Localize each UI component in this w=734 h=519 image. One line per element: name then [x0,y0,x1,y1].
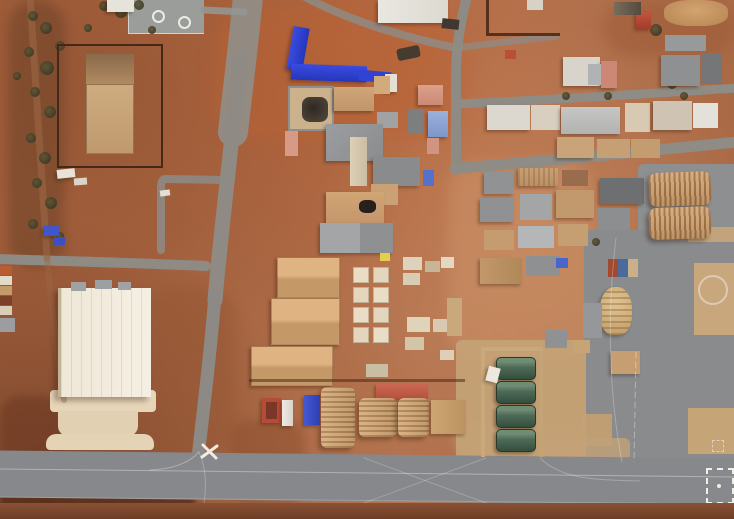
small-dashed-square [712,440,724,452]
helipad-circle-1 [152,10,165,23]
dashed-square-center-dot [717,484,721,488]
satellite-image [0,0,734,519]
apron-circle-marking [698,275,728,305]
helipad-circle-2 [178,16,191,29]
marking-layer [0,0,734,519]
south-dirt-strip [0,503,734,519]
